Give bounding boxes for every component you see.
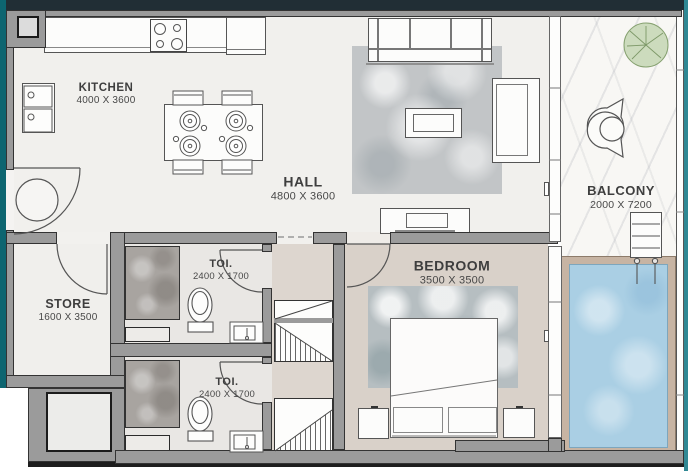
glass-door-hall-balcony <box>549 16 561 242</box>
hall-label: HALL 4800 X 3600 <box>271 174 336 203</box>
toilet1-door-gap <box>262 252 272 288</box>
room-name: HALL <box>271 174 336 190</box>
room-name: BALCONY <box>587 183 655 198</box>
room-dims: 4800 X 3600 <box>271 191 336 203</box>
sofa-cushion-divider <box>409 19 411 48</box>
wall-top <box>6 10 682 17</box>
pool-water <box>569 264 668 448</box>
floor-plan: KITCHEN 4000 X 3600 HALL 4800 X 3600 BED… <box>0 0 688 471</box>
entrance-floor <box>6 170 14 230</box>
tv-screen <box>406 213 448 228</box>
toilet2-label: TOI. 2400 X 1700 <box>199 376 255 400</box>
glass-door-bedroom-pool <box>548 246 562 438</box>
room-name: TOI. <box>193 258 249 270</box>
room-dims: 2000 X 7200 <box>587 199 655 211</box>
pillow-left <box>393 407 443 433</box>
toilet1-label: TOI. 2400 X 1700 <box>193 258 249 282</box>
sofa-base-line <box>366 63 494 65</box>
shower2-tray <box>125 360 180 428</box>
duct-divider-bar <box>274 318 333 323</box>
sofa-armrest <box>377 19 379 61</box>
duct-hatch <box>275 323 332 361</box>
room-name: STORE <box>39 297 98 311</box>
coffee-table <box>405 108 462 138</box>
store-door-gap <box>57 232 110 244</box>
bedroom-label: BEDROOM 3500 X 3500 <box>414 258 491 287</box>
duct-shaft-1-upper <box>274 300 333 320</box>
sofa-armrest <box>481 19 483 61</box>
pool-ladder <box>630 212 662 258</box>
wall-store-bottom <box>6 375 125 388</box>
glass-door-handle <box>544 182 549 196</box>
balcony-railing <box>676 10 684 458</box>
room-dims: 4000 X 3600 <box>77 95 136 106</box>
duct-shaft-2 <box>274 398 333 452</box>
wall-toilet-divider <box>110 343 272 357</box>
room-dims: 2400 X 1700 <box>199 389 255 400</box>
stove <box>150 19 187 52</box>
sofa-cushion-divider <box>450 19 452 48</box>
glass-wall-bottom-cap <box>548 438 562 452</box>
room-name: TOI. <box>199 376 255 388</box>
pool-deck <box>561 256 676 456</box>
pillow-right <box>448 407 497 433</box>
wall-bedroom-top <box>390 232 558 244</box>
fridge-line <box>227 49 265 50</box>
wall-bedroom-left <box>333 244 345 450</box>
nightstand-right <box>503 408 535 438</box>
armchair <box>492 78 540 163</box>
coffee-table-top <box>413 114 454 132</box>
service-shaft <box>46 392 112 452</box>
wall-hall-divider-c <box>313 232 347 244</box>
shower2-bench <box>125 435 170 451</box>
kitchen-sink-cabinet <box>22 83 55 133</box>
wall-toilet2-right <box>262 402 272 450</box>
store-label: STORE 1600 X 3500 <box>39 297 98 323</box>
duct-shaft-1-lower <box>274 322 333 362</box>
room-dims: 1600 X 3500 <box>39 312 98 323</box>
glass-door-handle <box>544 330 549 342</box>
kitchen-label: KITCHEN 4000 X 3600 <box>77 82 136 106</box>
tv-unit <box>380 208 470 234</box>
room-dims: 2400 X 1700 <box>193 271 249 282</box>
balcony-label: BALCONY 2000 X 7200 <box>587 183 655 211</box>
duct-hatch <box>275 399 332 451</box>
room-name: BEDROOM <box>414 258 491 274</box>
sofa-seat-line <box>369 48 491 50</box>
right-edge-teal <box>684 0 688 471</box>
dining-table <box>164 104 263 161</box>
wall-bottom <box>115 450 684 464</box>
corner-column <box>17 16 39 38</box>
toilet2-door-gap <box>262 364 272 402</box>
armchair-cushion <box>496 84 528 156</box>
room-name: KITCHEN <box>77 82 136 94</box>
sofa <box>368 18 492 62</box>
wall-left-lower <box>6 230 14 377</box>
room-dims: 3500 X 3500 <box>414 275 491 287</box>
hall-passage-gap <box>277 232 313 244</box>
fridge <box>226 17 266 55</box>
wall-hall-divider-a <box>6 232 57 244</box>
wall-toilet1-right <box>262 288 272 343</box>
top-band <box>0 0 684 10</box>
shower1-bench <box>125 327 170 342</box>
wall-toilet1-right-cap <box>262 244 272 252</box>
wall-toilet2-right-cap <box>262 357 272 364</box>
wall-hall-divider-b <box>110 232 277 244</box>
shower1-tray <box>125 246 180 320</box>
nightstand-left <box>358 408 389 439</box>
